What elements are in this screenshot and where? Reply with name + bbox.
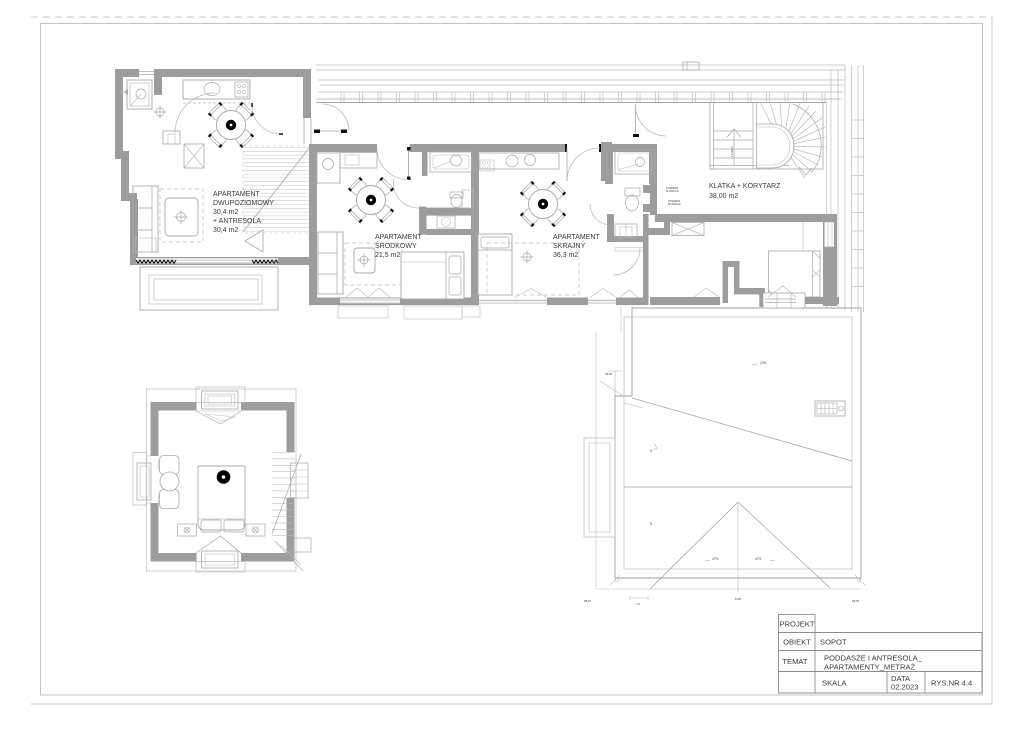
svg-text:R8,05: R8,05 bbox=[852, 599, 859, 603]
svg-text:W OBLICZ.: W OBLICZ. bbox=[666, 189, 680, 193]
svg-text:5: 5 bbox=[650, 522, 652, 526]
svg-text:8,98: 8,98 bbox=[735, 597, 741, 601]
svg-text:10%: 10% bbox=[760, 361, 767, 365]
svg-text:36,3 m2: 36,3 m2 bbox=[553, 252, 578, 259]
svg-text:47%: 47% bbox=[755, 557, 762, 561]
svg-text:W OBLICZ.: W OBLICZ. bbox=[668, 202, 682, 206]
svg-text:17x18,5: 17x18,5 bbox=[730, 146, 734, 157]
svg-text:PODDASZE I ANTRESOLA_: PODDASZE I ANTRESOLA_ bbox=[824, 654, 923, 663]
svg-text:R8,05: R8,05 bbox=[605, 372, 612, 376]
svg-text:DWUPOZIOMOWY: DWUPOZIOMOWY bbox=[213, 200, 274, 207]
svg-text:SKRAJNY: SKRAJNY bbox=[553, 243, 586, 250]
svg-text:21,5 m2: 21,5 m2 bbox=[375, 252, 400, 259]
svg-text:RYS.NR 4.4: RYS.NR 4.4 bbox=[931, 679, 972, 688]
svg-text:KLATKA + KORYTARZ: KLATKA + KORYTARZ bbox=[709, 183, 781, 190]
svg-text:5: 5 bbox=[650, 449, 652, 453]
svg-text:SOPOT: SOPOT bbox=[820, 638, 847, 647]
svg-text:APARTAMENT: APARTAMENT bbox=[213, 191, 260, 198]
svg-text:R8,05: R8,05 bbox=[584, 599, 591, 603]
svg-text:APARTAMENT: APARTAMENT bbox=[375, 234, 422, 241]
svg-text:47%: 47% bbox=[712, 557, 719, 561]
svg-text:APARTAMENTY_METRAŻ: APARTAMENTY_METRAŻ bbox=[824, 663, 915, 672]
svg-text:SKALA: SKALA bbox=[822, 679, 847, 688]
svg-text:7,5: 7,5 bbox=[636, 602, 640, 606]
svg-text:30,4 m2: 30,4 m2 bbox=[213, 209, 238, 216]
svg-text:ŚRODKOWY: ŚRODKOWY bbox=[375, 241, 417, 250]
svg-text:PROJEKT: PROJEKT bbox=[779, 620, 814, 629]
svg-text:+ ANTRESOLA: + ANTRESOLA bbox=[213, 218, 261, 225]
svg-text:APARTAMENT: APARTAMENT bbox=[553, 234, 600, 241]
svg-text:38,00 m2: 38,00 m2 bbox=[709, 193, 738, 200]
svg-text:30,4 m2: 30,4 m2 bbox=[213, 227, 238, 234]
svg-text:TEMAT: TEMAT bbox=[782, 657, 808, 666]
svg-text:OBIEKT: OBIEKT bbox=[783, 638, 811, 647]
svg-text:02.2023: 02.2023 bbox=[891, 683, 918, 692]
